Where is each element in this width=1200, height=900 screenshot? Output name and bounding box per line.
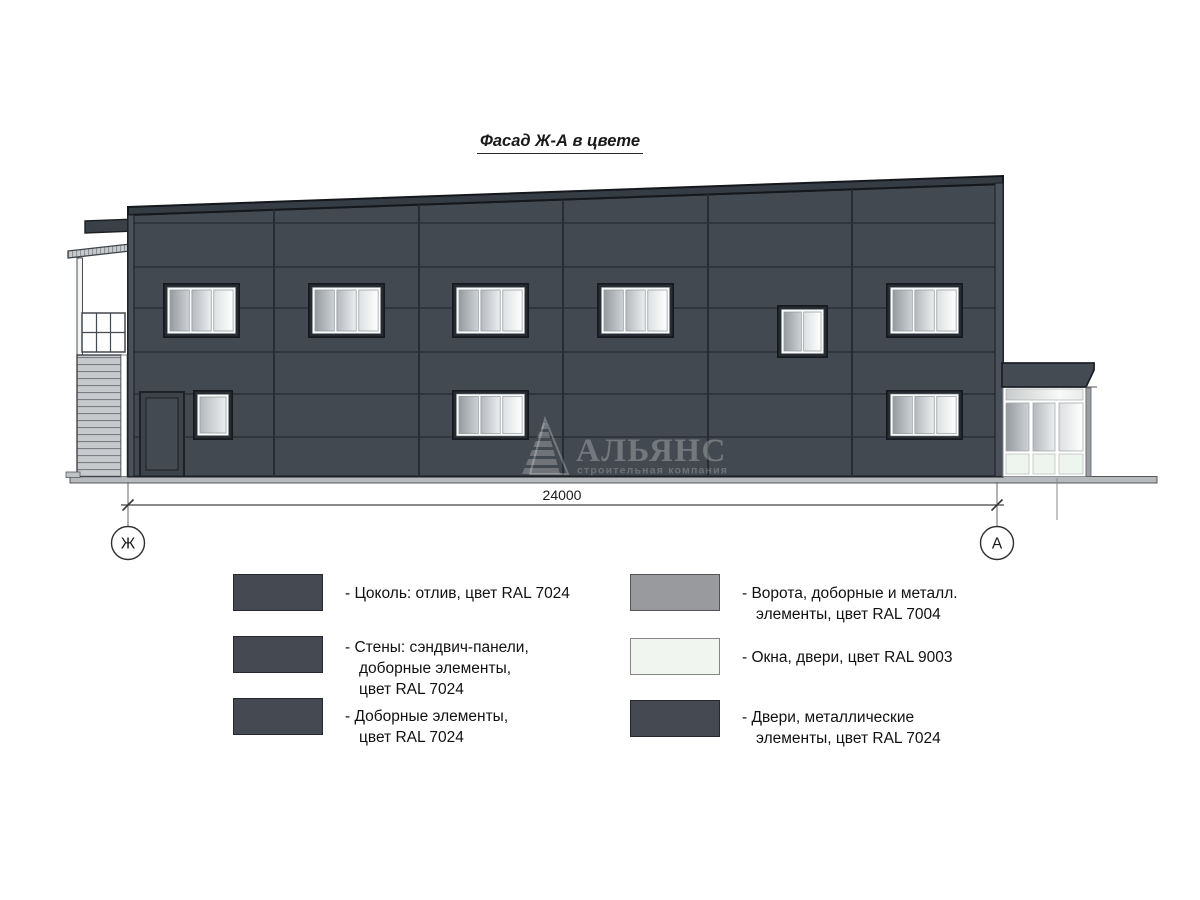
stair-treads: [77, 355, 121, 477]
entrance-corner-post: [1086, 388, 1091, 477]
window-3pane: [453, 391, 528, 440]
window-2pane: [778, 306, 827, 357]
entrance-vestibule: [1002, 363, 1097, 520]
entrance-roof: [1002, 363, 1094, 387]
stair-stringer: [121, 355, 127, 477]
window-3pane: [164, 284, 239, 337]
entry-door: [140, 392, 184, 477]
dimension-value: 24000: [543, 487, 582, 503]
corner-trim-right: [995, 183, 1003, 477]
legend-item: - Доборные элементы, цвет RAL 7024: [233, 698, 508, 748]
dimension-string: 24000: [121, 482, 1004, 527]
main-building: [128, 176, 1003, 477]
legend-label: - Двери, металлические элементы, цвет RA…: [742, 700, 941, 749]
entrance-door-glass: [1006, 403, 1083, 451]
legend-swatch: [630, 638, 720, 675]
legend-item: - Стены: сэндвич-панели, доборные элемен…: [233, 636, 529, 700]
window-3pane: [453, 284, 528, 337]
window-3pane: [309, 284, 384, 337]
axis-bubble-right: А: [981, 527, 1014, 560]
entrance-transom: [1006, 389, 1083, 400]
legend-swatch: [233, 698, 323, 735]
stair-footing: [66, 472, 80, 478]
legend-swatch: [630, 574, 720, 611]
legend-swatch: [233, 636, 323, 673]
facade-drawing: АЛЬЯНС строительная компания: [0, 0, 1200, 900]
window-3pane: [598, 284, 673, 337]
legend-label: - Цоколь: отлив, цвет RAL 7024: [345, 574, 570, 604]
axis-label-right: А: [992, 536, 1003, 553]
stair-railing: [82, 313, 125, 352]
legend-label: - Стены: сэндвич-панели, доборные элемен…: [345, 636, 529, 700]
legend-swatch: [233, 574, 323, 611]
legend-item: - Ворота, доборные и металл. элементы, ц…: [630, 574, 958, 625]
corner-trim-left: [128, 215, 134, 477]
legend-label: - Окна, двери, цвет RAL 9003: [742, 638, 953, 668]
entrance-kick-panels: [1006, 454, 1083, 474]
facade-sheet: Фасад Ж-А в цвете: [0, 0, 1200, 900]
legend-item: - Цоколь: отлив, цвет RAL 7024: [233, 574, 570, 611]
axis-label-left: Ж: [121, 536, 136, 553]
window-3pane: [887, 391, 962, 440]
window-1pane: [194, 391, 232, 439]
legend-item: - Окна, двери, цвет RAL 9003: [630, 638, 953, 675]
window-3pane: [887, 284, 962, 337]
legend-item: - Двери, металлические элементы, цвет RA…: [630, 700, 941, 749]
legend-label: - Ворота, доборные и металл. элементы, ц…: [742, 574, 958, 625]
legend-swatch: [630, 700, 720, 737]
legend-label: - Доборные элементы, цвет RAL 7024: [345, 698, 508, 748]
main-wall: [128, 184, 1003, 477]
axis-bubble-left: Ж: [112, 527, 145, 560]
watermark-tagline: строительная компания: [577, 465, 728, 477]
